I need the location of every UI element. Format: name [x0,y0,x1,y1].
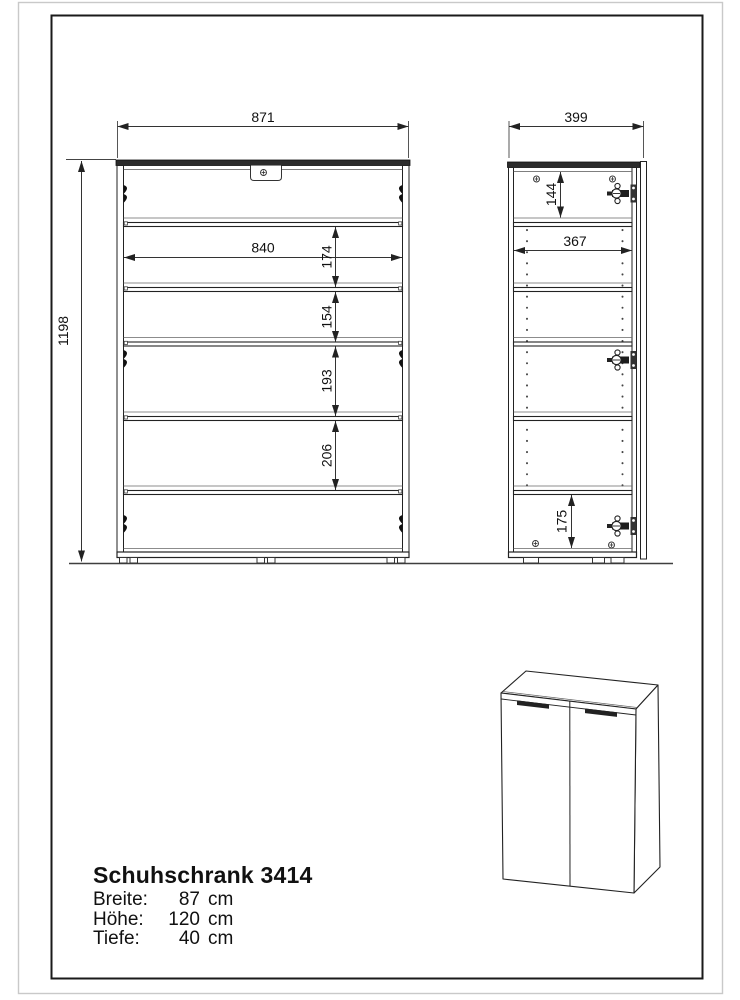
dim-gap1-label: 174 [319,245,335,269]
spec-label: Breite: [93,890,157,910]
spec-value: 87 [157,890,200,910]
product-title: Schuhschrank 3414 [93,863,312,888]
dim-depth-label: 399 [564,109,588,125]
shelf-2 [124,283,403,292]
spec-row-breite: Breite: 87 cm [93,890,312,910]
dim-gap3-label: 193 [319,369,335,393]
shelf-pin [124,341,127,344]
spec-unit: cm [208,890,233,910]
dim-width-label: 871 [251,109,275,125]
hinge-mark-icons [124,185,403,533]
spec-label: Höhe: [93,910,157,930]
spec-unit: cm [208,929,233,949]
spec-value: 40 [157,929,200,949]
shelf-pin [124,490,127,493]
shelf-pin [399,341,402,344]
back-panel [509,168,514,558]
technical-drawing: 871 1198 [0,0,740,1000]
shelf-pin [124,222,127,225]
shelf-pin [124,287,127,290]
shelf-pin [399,287,402,290]
spec-label: Tiefe: [93,929,157,949]
dim-innerdepth-label: 367 [563,233,587,249]
bottom-panel [509,552,637,558]
door-panel [641,162,647,560]
spec-value: 120 [157,910,200,930]
dim-height-label: 1198 [55,316,71,346]
bottom-panel [117,552,409,558]
shelf-3 [124,338,403,347]
spec-row-tiefe: Tiefe: 40 cm [93,929,312,949]
dim-gap4-label: 206 [319,444,335,468]
shelf-5 [124,486,403,495]
dim-bottomgap-label: 175 [554,510,570,534]
shelf-pin [124,416,127,419]
shelf-pin [399,222,402,225]
dim-topgap-label: 144 [543,183,559,207]
dim-gap2-label: 154 [319,305,335,329]
spec-block: Schuhschrank 3414 Breite: 87 cm Höhe: 12… [93,863,312,949]
iso-view [501,671,660,893]
shelf-pin [399,416,402,419]
shelf-1 [124,218,403,227]
right-side-panel [403,166,410,558]
side-view: 399 144 [508,109,647,563]
iso-side-face [634,685,660,893]
foot [524,558,625,564]
dim-inner-width-label: 840 [251,240,275,256]
front-view: 871 1198 [55,109,410,563]
foot [120,558,406,564]
spec-row-hoehe: Höhe: 120 cm [93,910,312,930]
iso-front-face [501,693,636,893]
top-panel [116,160,410,166]
top-panel [508,162,641,168]
left-side-panel [117,166,124,558]
shelf-4 [124,412,403,421]
spec-unit: cm [208,910,233,930]
shelf-pin [399,490,402,493]
